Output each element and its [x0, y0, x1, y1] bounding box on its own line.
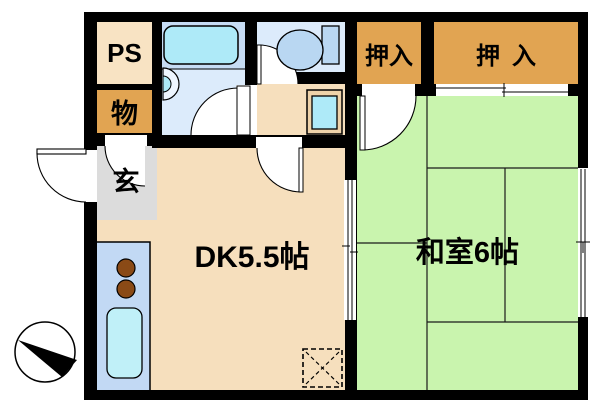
closet-left-door-leaf [360, 96, 365, 150]
toilet-door-leaf [257, 45, 261, 84]
wall-closet-divider [421, 12, 434, 96]
stove-burner-icon [117, 280, 135, 298]
entrance-door-opening [84, 150, 97, 202]
bath-door-leaf [237, 86, 250, 135]
wall-top [84, 12, 588, 22]
floor-plan: PS 物 玄 DK5.5帖 和室6帖 押入 押入 [0, 0, 600, 413]
wall-ps-storage [97, 84, 152, 90]
closet-left-opening [362, 84, 415, 96]
toilet-bowl-icon [277, 30, 323, 70]
entrance-door-arc [37, 153, 86, 202]
pipe-space-floor [97, 22, 152, 84]
closet-right-fusuma [436, 84, 568, 96]
washing-machine-icon [312, 96, 337, 129]
compass-north-icon [15, 322, 77, 382]
bathtub-icon [164, 26, 238, 64]
dk-tatami-sliding-door [344, 180, 356, 320]
dk-door-opening [256, 137, 302, 148]
closet-left-floor [357, 22, 421, 84]
closet-right-floor [434, 22, 578, 84]
storage-door-opening [105, 135, 147, 146]
wall-bath-corridor-bottom [152, 135, 357, 148]
kitchen-sink-icon [107, 308, 142, 378]
wall-ps-bath [152, 22, 162, 146]
toilet-tank-icon [322, 26, 339, 64]
floor-plan-drawing [0, 0, 600, 413]
storage-room-floor [97, 90, 152, 133]
entrance-door-leaf [37, 149, 86, 154]
stove-burner-icon [117, 259, 135, 277]
dk-door-leaf [299, 148, 303, 192]
wall-bottom [84, 390, 588, 400]
wall-left [84, 12, 97, 400]
